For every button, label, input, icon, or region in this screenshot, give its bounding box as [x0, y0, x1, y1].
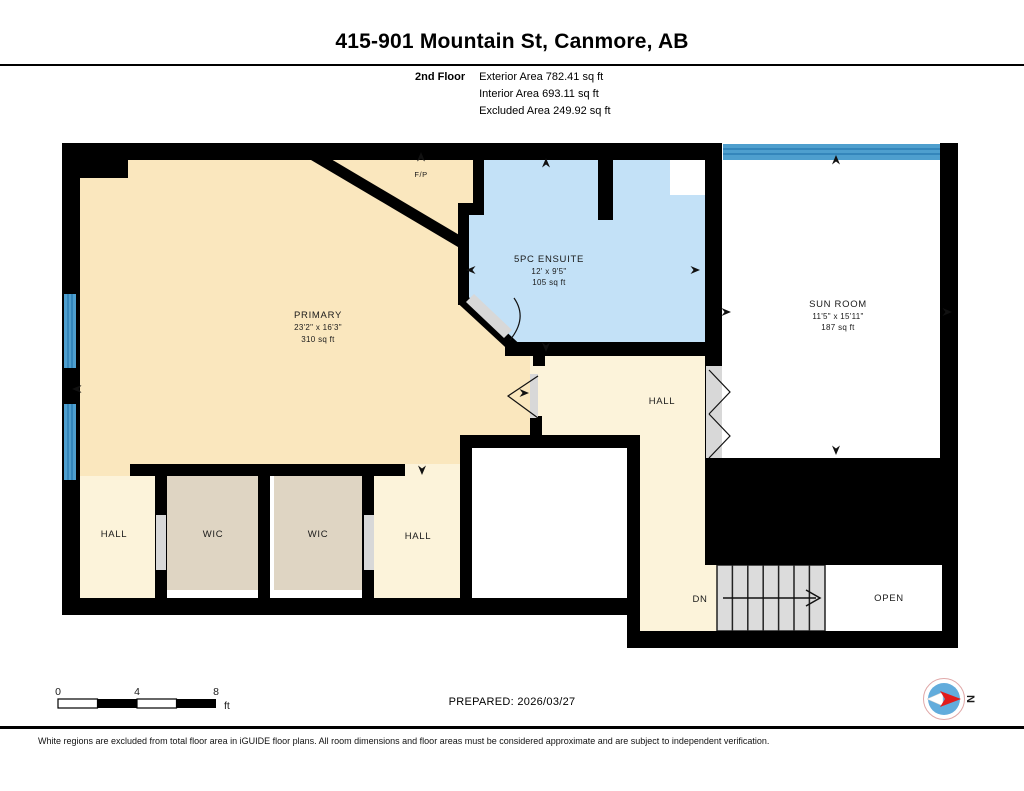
- window-left-upper: [64, 294, 76, 368]
- ensuite-name: 5PC ENSUITE: [514, 254, 584, 265]
- staircase: [717, 565, 825, 631]
- floor-plan: F/P PRIMARY 23'2" x 16'3" 310 sq ft 5PC …: [0, 0, 1024, 791]
- open-label: OPEN: [874, 593, 904, 604]
- disclaimer-text: White regions are excluded from total fl…: [38, 736, 1004, 746]
- ensuite-floor: [464, 160, 705, 342]
- arrow-right-sunroom-left-icon: [722, 308, 732, 316]
- sunroom-name: SUN ROOM: [809, 299, 867, 310]
- hall-left-label: HALL: [101, 529, 128, 540]
- window-sunroom-top: [723, 144, 940, 160]
- ensuite-area: 105 sq ft: [532, 278, 566, 287]
- wic-left-slider-door: [156, 515, 166, 570]
- ensuite-dims: 12' x 9'5": [531, 267, 566, 276]
- footer-divider: [0, 726, 1024, 729]
- arrow-down-sunroom-icon: [832, 446, 840, 456]
- excluded-region: [472, 448, 627, 600]
- prepared-date: PREPARED: 2026/03/27: [0, 696, 1024, 708]
- ensuite-notch: [670, 160, 705, 195]
- sunroom-area: 187 sq ft: [821, 323, 855, 332]
- stairs-dn-label: DN: [692, 594, 707, 605]
- window-left-lower: [64, 404, 76, 480]
- primary-name: PRIMARY: [294, 310, 342, 321]
- wic-left-label: WIC: [203, 529, 224, 540]
- hall-right-label: HALL: [405, 531, 432, 542]
- primary-dims: 23'2" x 16'3": [294, 323, 342, 332]
- sunroom-dims: 11'5" x 15'11": [812, 312, 863, 321]
- fireplace-label: F/P: [414, 170, 427, 179]
- hall-mid-label: HALL: [649, 396, 676, 407]
- wic-right-label: WIC: [308, 529, 329, 540]
- sunroom-double-door: [706, 366, 722, 458]
- wic-right-slider-door: [364, 515, 374, 570]
- primary-area: 310 sq ft: [301, 335, 335, 344]
